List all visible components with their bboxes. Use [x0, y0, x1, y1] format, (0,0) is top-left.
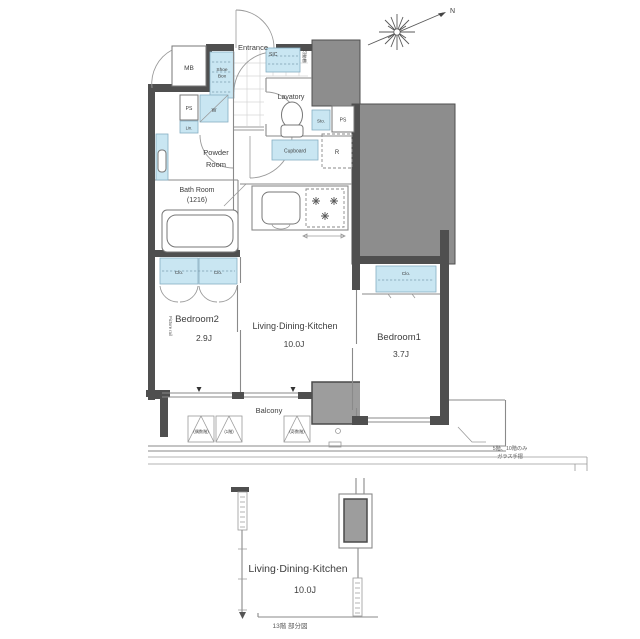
bath-door-fold	[224, 184, 246, 206]
bath-room-label-1: Bath Room	[179, 187, 214, 194]
structure-block-top	[312, 40, 360, 106]
ldk-size: 10.0J	[284, 339, 305, 349]
bedroom1-window	[368, 418, 430, 422]
partial-plan-caption: 13階 部分図	[272, 621, 307, 630]
bedroom2-label: Bedroom2	[175, 314, 219, 325]
refrigerator-label: R	[335, 150, 340, 156]
sic-shelf-note: 可動棚	[301, 50, 308, 63]
handrail-note: 5階、10階のみ ガラス手摺	[458, 427, 527, 460]
picture-rail-label: Picture rail	[168, 316, 173, 336]
structure-block-right	[352, 104, 455, 264]
ac-right-label: (奇数階)	[289, 428, 305, 435]
partial-ldk-size: 10.0J	[294, 585, 316, 595]
mb-door-arc	[152, 50, 172, 88]
partial-plan-13f: Living·Dining·Kitchen 10.0J 13階 部分図	[231, 478, 378, 630]
partial-pillar	[344, 499, 367, 542]
shoe-box-label-2: Box	[218, 74, 227, 80]
window-slide-marker-1	[197, 387, 202, 392]
powder-room-label-1: Powder	[203, 148, 229, 157]
ac-unit-space-middle: (1階)	[216, 416, 242, 442]
ldk-label: Living·Dining·Kitchen	[252, 321, 337, 331]
north-label: N	[450, 8, 455, 15]
bath-room-label-2: (1216)	[187, 197, 207, 204]
lavatory-label: Lavatory	[278, 94, 305, 101]
balcony-label: Balcony	[256, 406, 283, 415]
partial-left-wall	[231, 487, 249, 619]
kitchen-counter	[240, 184, 352, 238]
bedroom2-size: 2.9J	[196, 333, 212, 343]
closet-bifold-doors	[160, 286, 237, 302]
counter-dimension-arrow	[303, 234, 345, 238]
partial-ldk-label: Living·Dining·Kitchen	[248, 563, 347, 575]
bedroom1-closet	[376, 266, 436, 292]
partial-right-wall	[258, 478, 378, 617]
shoe-box-label-1: Shoe	[216, 67, 228, 73]
ldk-area: Living·Dining·Kitchen 10.0J	[252, 321, 337, 349]
window-slide-marker-2	[291, 387, 296, 392]
washer-label: W	[212, 108, 217, 114]
ac-middle-label: (1階)	[224, 428, 234, 435]
floor-plan-drawing: MB Shoe Box SIC 可動棚 Entrance Lavatory St…	[0, 0, 640, 639]
closet2-left-label: Clo.	[175, 270, 184, 276]
bedroom2-area: Clo. Clo. Picture rail Bedroom2 2.9J	[160, 257, 241, 392]
ac-left-label: (偶数階)	[193, 428, 209, 435]
powder-room-label-2: Room	[206, 160, 226, 169]
toilet-icon	[281, 102, 303, 137]
cupboard-label: Cupboard	[284, 149, 306, 155]
stove-icon	[306, 189, 344, 227]
ps-left-label: PS	[186, 106, 193, 112]
mb-label: MB	[184, 65, 194, 72]
kitchen-back: Cupboard R	[272, 134, 352, 168]
bedroom1-size: 3.7J	[393, 349, 409, 359]
closet1-label: Clo.	[402, 271, 411, 277]
floor-plan-page: MB Shoe Box SIC 可動棚 Entrance Lavatory St…	[0, 0, 640, 639]
closet2-right-label: Clo.	[214, 270, 223, 276]
north-arrow-icon: N	[368, 8, 455, 50]
note-line-1: 5階、10階のみ	[493, 444, 528, 452]
ac-unit-space-left: (偶数階)	[188, 416, 214, 442]
kitchen-sink-icon	[262, 192, 300, 229]
south-windows	[162, 387, 298, 397]
linen-label: Lin.	[186, 126, 193, 131]
sic-label: SIC	[269, 52, 278, 58]
bathtub-icon	[162, 210, 238, 252]
ps-right-label: PS	[340, 118, 347, 124]
entrance-label: Entrance	[238, 43, 268, 52]
bedroom1-label: Bedroom1	[377, 332, 421, 343]
note-line-2: ガラス手摺	[497, 452, 523, 460]
hose-bib-icon	[336, 429, 341, 434]
bedroom2-sliding-door	[238, 257, 241, 392]
ac-unit-space-right: (奇数階)	[284, 416, 310, 442]
storage-label: Sto.	[317, 119, 325, 124]
